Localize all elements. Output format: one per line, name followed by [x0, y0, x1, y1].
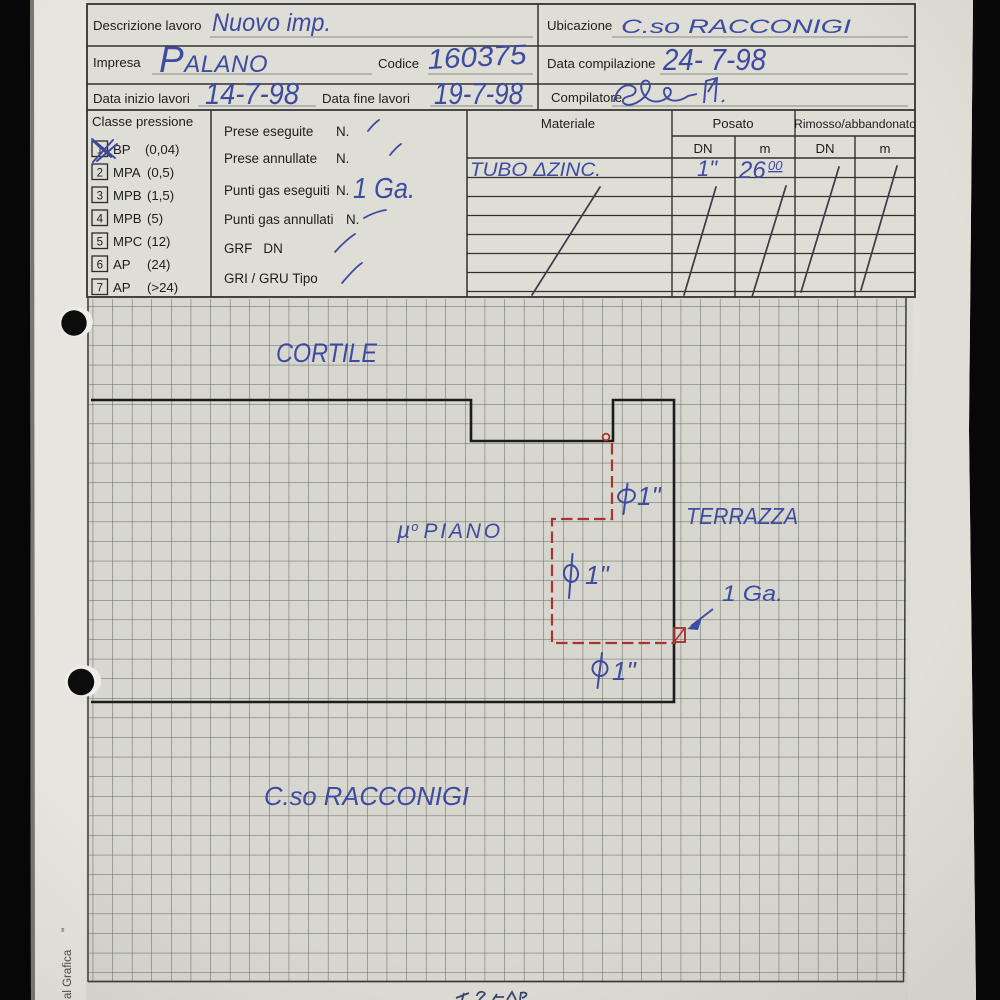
svg-text:al Grafica: al Grafica [62, 949, 74, 999]
svg-text:1": 1" [585, 560, 610, 590]
svg-text:1": 1" [612, 656, 637, 686]
svg-text:1": 1" [637, 481, 662, 511]
svg-text:CORTILE: CORTILE [276, 338, 378, 368]
svg-text:": " [61, 928, 73, 932]
svg-text:1 Ga.: 1 Ga. [722, 581, 783, 606]
svg-text:TERRAZZA: TERRAZZA [686, 503, 798, 529]
svg-text:C.so RACCONIGI: C.so RACCONIGI [264, 781, 469, 811]
